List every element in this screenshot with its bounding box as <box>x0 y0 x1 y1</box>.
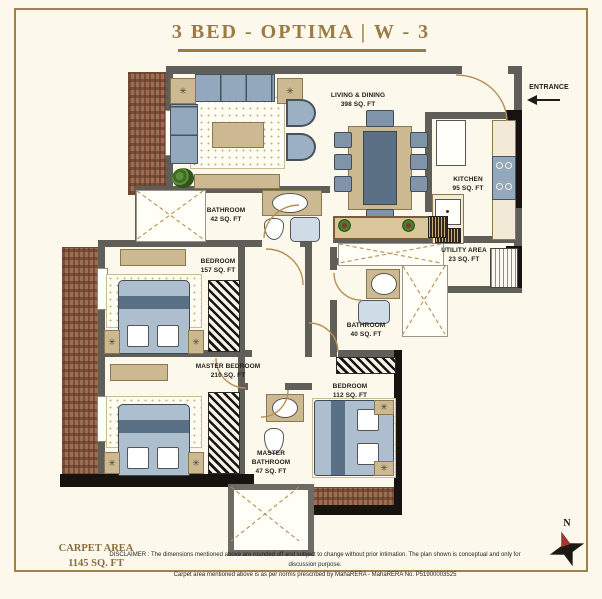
dining-chair <box>410 154 428 170</box>
dresser <box>110 364 168 381</box>
nightstand: ✳ <box>188 452 204 474</box>
dining-chair <box>334 132 352 148</box>
wall <box>238 383 248 390</box>
dining-chair <box>334 176 352 192</box>
living-deck <box>128 72 168 195</box>
wall <box>166 66 462 74</box>
tv-console <box>194 174 280 189</box>
disclaimer: DISCLAIMER : The dimensions mentioned ab… <box>100 551 530 581</box>
wall <box>305 240 312 357</box>
title-underline <box>178 49 426 52</box>
page-title: 3 BED - OPTIMA | W - 3 <box>0 21 602 44</box>
fridge <box>436 120 466 166</box>
entrance-label: ENTRANCE <box>520 83 578 92</box>
nightstand: ✳ <box>104 452 120 474</box>
compass: N <box>546 518 588 574</box>
room-label-bathroom-40: BATHROOM40 SQ. FT <box>336 322 396 340</box>
room-label-utility: UTILITY AREA23 SQ. FT <box>440 247 488 265</box>
entrance-arrow-icon <box>536 99 560 101</box>
wall <box>338 350 402 357</box>
room-label-living-dining: LIVING & DINING398 SQ. FT <box>310 92 406 110</box>
wardrobe <box>208 280 240 352</box>
dining-chair <box>410 132 428 148</box>
nightstand: ✳ <box>104 330 120 354</box>
nightstand: ✳ <box>374 400 394 415</box>
washing-machine <box>490 248 518 288</box>
coffee-table <box>212 122 264 148</box>
dining-chair <box>410 176 428 192</box>
room-label-bathroom-42: BATHROOM42 SQ. FT <box>196 207 256 225</box>
wardrobe <box>336 357 396 374</box>
bed <box>118 404 190 476</box>
flower <box>338 219 351 232</box>
shaft <box>228 484 314 556</box>
bed <box>118 280 190 354</box>
shaft <box>338 243 444 266</box>
wardrobe <box>208 392 240 474</box>
dining-chair <box>366 110 394 127</box>
room-label-master-bathroom: MASTER BATHROOM47 SQ. FT <box>244 450 298 476</box>
dresser <box>120 249 186 266</box>
room-label-bedroom-157: BEDROOM157 SQ. FT <box>186 258 250 276</box>
ac-grill <box>428 216 448 238</box>
bathtub <box>290 217 320 242</box>
room-label-kitchen: KITCHEN95 SQ. FT <box>436 176 500 194</box>
flower <box>402 219 415 232</box>
dining-table <box>348 126 412 210</box>
bathtub <box>358 300 390 324</box>
dining-chair <box>334 154 352 170</box>
sofa-two-seater <box>170 104 198 164</box>
room-label-master-bedroom: MASTER BEDROOM210 SQ. FT <box>178 363 278 381</box>
wash-basin <box>272 193 308 213</box>
floor-plan-page: 3 BED - OPTIMA | W - 3 ✳ ✳ <box>0 0 602 599</box>
shaft <box>402 265 448 337</box>
room-label-bedroom-112: BEDROOM112 SQ. FT <box>318 383 382 401</box>
sofa-three-seater <box>195 74 275 102</box>
armchair <box>286 133 316 161</box>
wall <box>508 66 522 74</box>
bedroom-deck <box>62 247 100 477</box>
nightstand: ✳ <box>374 461 394 476</box>
side-table: ✳ <box>170 78 196 104</box>
nightstand: ✳ <box>188 330 204 354</box>
wall <box>285 383 312 390</box>
wash-basin <box>272 398 298 418</box>
plant <box>172 168 194 188</box>
compass-star-icon <box>542 524 592 574</box>
wash-basin <box>371 273 397 295</box>
wall <box>305 350 312 357</box>
